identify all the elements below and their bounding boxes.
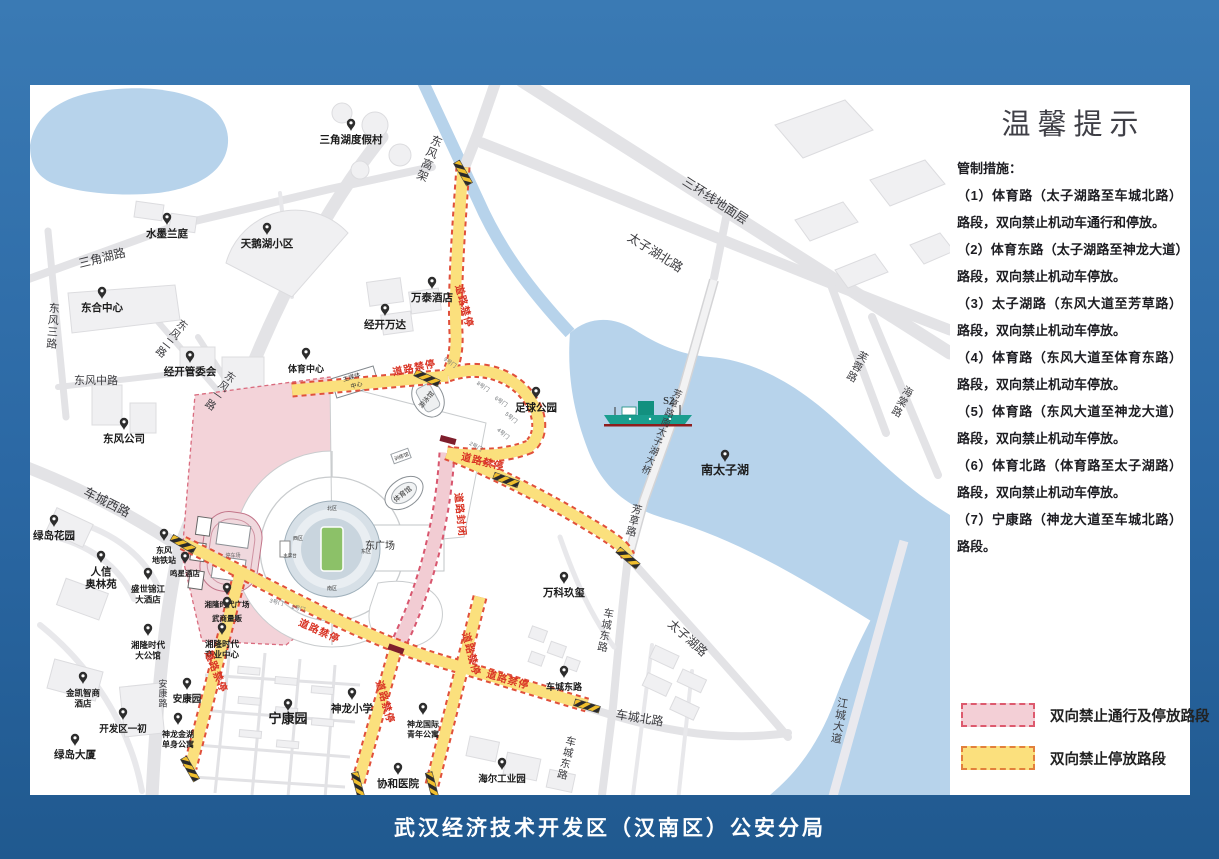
road-name-label: 三环线地面层 (680, 174, 751, 227)
poi-label: 万科玖玺 (542, 586, 585, 599)
measure-item: （1）体育路（太子湖路至车城北路）路段，双向禁止机动车通行和停放。 (957, 182, 1182, 236)
poi-label: 开发区一初 (99, 723, 147, 735)
site-label: 西区 (293, 536, 303, 542)
map: 三角湖路东风三路东风二路东风一路东风中路车城西路东风高架三环线地面层太子湖北路芙… (30, 85, 950, 795)
poi-label: 安康园 (173, 693, 202, 705)
poi-label: 神龙小学 (331, 702, 373, 715)
traffic-notice-poster: { "frame": { "footer": "武汉经济技术开发区（汉南区）公安… (0, 0, 1219, 859)
map-canvas: 三角湖路东风三路东风二路东风一路东风中路车城西路东风高架三环线地面层太子湖北路芙… (30, 85, 950, 795)
poi-label: 宁康园 (268, 711, 307, 726)
measure-item: （7）宁康路（神龙大道至车城北路）路段。 (957, 506, 1182, 560)
legend-row: 双向禁止停放路段 (961, 746, 1210, 770)
poi-label: 海尔工业园 (478, 773, 526, 785)
road-name-label: 东风中路 (74, 374, 118, 387)
poi-label: 湘隆时代大公馆 (131, 640, 166, 661)
legend-label: 双向禁止通行及停放路段 (1050, 705, 1210, 726)
poi-label: 绿岛大厦 (54, 748, 96, 761)
poi-label: 南太子湖 (701, 462, 749, 477)
poi-label: 盛世锦江大酒店 (131, 584, 166, 605)
poi-pin-icon (71, 734, 79, 746)
poi-pin-icon (394, 763, 402, 775)
poi-pin-icon (419, 703, 427, 715)
poi-label: 足球公园 (515, 401, 557, 414)
site-label: 主席台 (283, 552, 297, 559)
poi-label: 绿岛花园 (33, 529, 75, 542)
poi-label: 武商量贩 (212, 613, 242, 623)
stadium-field (321, 527, 343, 571)
site-label: 北区 (327, 505, 337, 512)
legend-row: 双向禁止通行及停放路段 (961, 703, 1210, 727)
poi-label: 车城东路 (546, 681, 583, 692)
site-label: 南区 (327, 585, 337, 592)
gate-label: 4号门 (495, 426, 511, 441)
poi-pin-icon (560, 666, 568, 678)
site-label: 停车场 (225, 552, 240, 559)
traffic-control-label: 道路禁停 (485, 667, 531, 692)
notice-panel: 温馨提示 管制措施： （1）体育路（太子湖路至车城北路）路段，双向禁止机动车通行… (950, 85, 1190, 795)
water-layer (30, 85, 950, 795)
poi-label: 三角湖度假村 (320, 133, 383, 146)
ship-label: S2 (663, 395, 675, 407)
poi-label: 神龙国际青年公寓 (407, 719, 439, 739)
poi-label: 经开万达 (364, 318, 406, 331)
legend-label: 双向禁止停放路段 (1050, 748, 1166, 769)
poi-pin-icon (174, 713, 182, 725)
poi-label: 体育中心 (288, 363, 324, 374)
road-name-label: 东风高架 (415, 134, 445, 185)
poi-label: 东合中心 (81, 301, 123, 314)
poi-label: 东风公司 (103, 432, 145, 445)
gate-label: 8号门 (475, 379, 491, 394)
measure-item: （5）体育路（东风大道至神龙大道）路段，双向禁止机动车停放。 (957, 398, 1182, 452)
measure-item: （4）体育路（东风大道至体育东路）路段，双向禁止机动车停放。 (957, 344, 1182, 398)
site-label: 东广场 (365, 539, 395, 552)
notice-card: 三角湖路东风三路东风二路东风一路东风中路车城西路东风高架三环线地面层太子湖北路芙… (30, 85, 1190, 795)
poi-label: 经开管委会 (164, 365, 217, 378)
road-name-label: 车城西路 (81, 484, 133, 520)
measure-item: （3）太子湖路（东风大道至芳草路）路段，双向禁止机动车停放。 (957, 290, 1182, 344)
poi-pin-icon (560, 572, 568, 584)
poi-pin-icon (347, 119, 355, 131)
poi-pin-icon (120, 418, 128, 430)
measure-item: （2）体育东路（太子湖路至神龙大道）路段，双向禁止机动车停放。 (957, 236, 1182, 290)
road-name-label: 太子湖北路 (625, 229, 686, 275)
control-measures: 管制措施： （1）体育路（太子湖路至车城北路）路段，双向禁止机动车通行和停放。（… (950, 155, 1190, 560)
poi-label: 协和医院 (377, 777, 419, 790)
poi-pin-icon (144, 624, 152, 636)
issuer-footer: 武汉经济技术开发区（汉南区）公安分局 (30, 795, 1190, 859)
measures-list: （1）体育路（太子湖路至车城北路）路段，双向禁止机动车通行和停放。（2）体育东路… (957, 182, 1182, 560)
poi-label: 万泰酒店 (410, 291, 453, 304)
poi-pin-icon (348, 688, 356, 700)
poi-pin-icon (428, 277, 436, 289)
road-name-label: 安康路 (158, 678, 167, 708)
map-legend: 双向禁止通行及停放路段双向禁止停放路段 (961, 684, 1210, 770)
poi-label: 鸣星酒店 (170, 568, 200, 578)
panel-title: 温馨提示 (950, 101, 1190, 143)
poi-label: 神龙金湖单身公寓 (162, 729, 194, 749)
legend-swatch (961, 703, 1035, 727)
poi-label: 水墨兰庭 (145, 227, 188, 240)
measures-intro: 管制措施： (957, 155, 1182, 182)
measure-item: （6）体育北路（体育路至太子湖路）路段，双向禁止机动车停放。 (957, 452, 1182, 506)
poi-pin-icon (302, 348, 310, 360)
poi-label: 天鹅湖小区 (241, 237, 294, 250)
poi-pin-icon (183, 678, 191, 690)
legend-swatch (961, 746, 1035, 770)
gate-label: 6号门 (493, 394, 509, 409)
